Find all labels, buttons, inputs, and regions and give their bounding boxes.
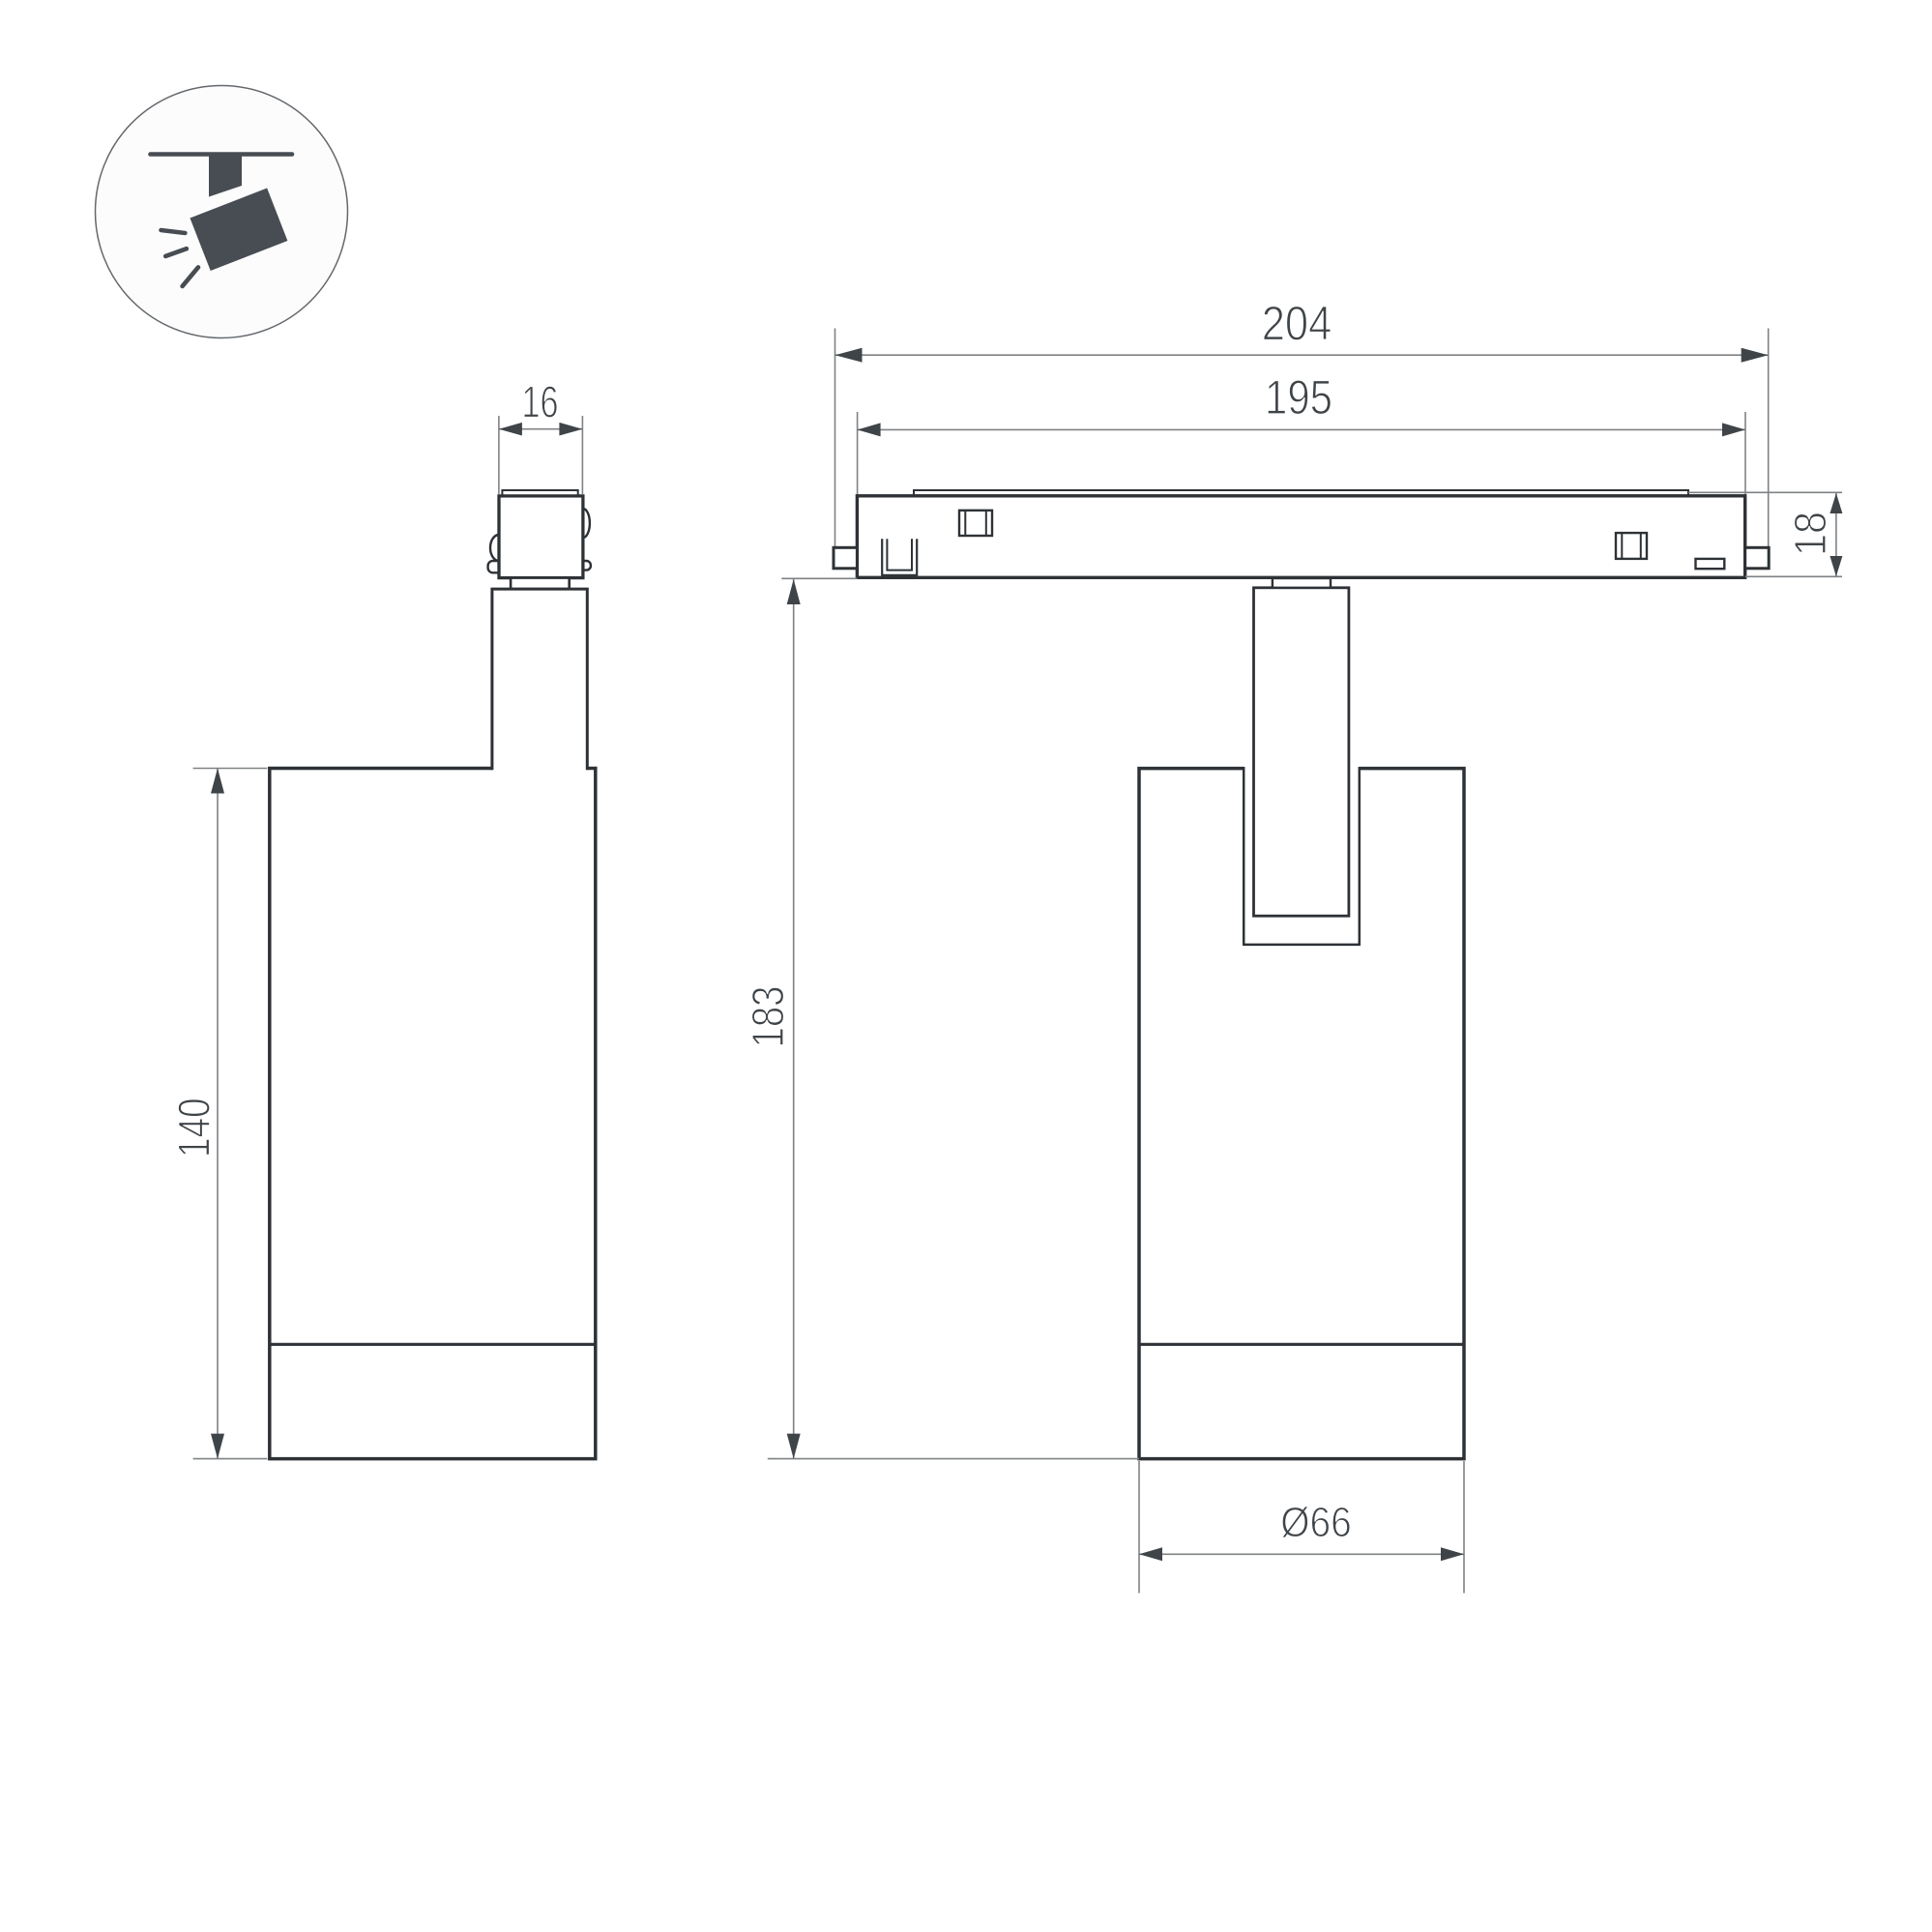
svg-text:204: 204 — [1262, 297, 1332, 351]
svg-text:18: 18 — [1785, 512, 1835, 556]
svg-text:195: 195 — [1265, 370, 1332, 424]
svg-text:140: 140 — [169, 1098, 220, 1158]
svg-text:Ø66: Ø66 — [1280, 1499, 1352, 1546]
svg-text:16: 16 — [522, 377, 559, 427]
svg-text:183: 183 — [743, 986, 793, 1048]
